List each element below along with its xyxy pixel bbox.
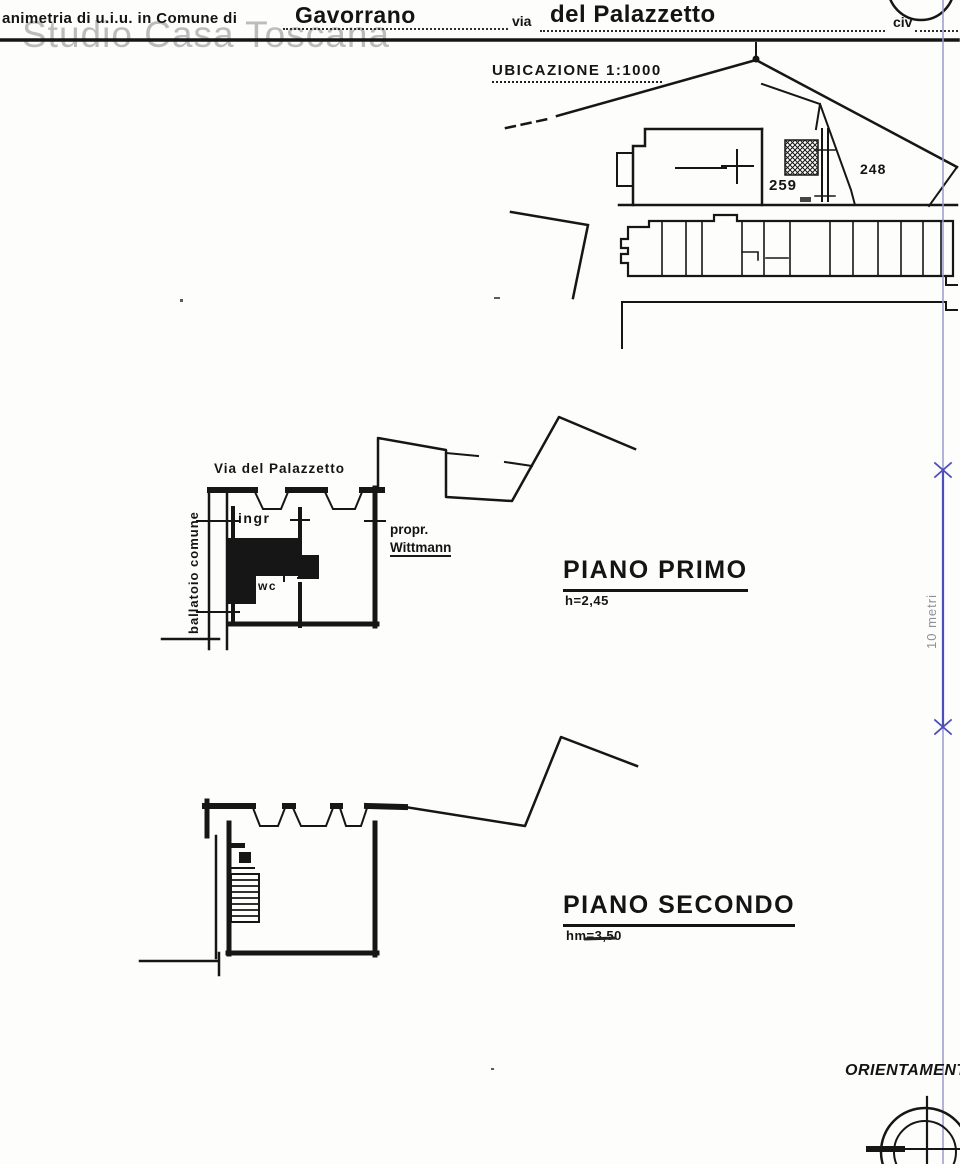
location-map-title: UBICAZIONE 1:1000	[492, 62, 662, 83]
owner-label-line1: propr.	[390, 522, 428, 537]
via-label: via	[512, 13, 531, 29]
form-dotted-line	[540, 30, 885, 32]
second-floor-plan-drawing	[140, 737, 637, 975]
form-dotted-line	[915, 30, 958, 32]
room-label-wc: wc	[258, 579, 277, 593]
parcel-number-259: 259	[769, 177, 797, 194]
room-label-ingresso: ingr	[238, 510, 270, 526]
owner-label-line2: Wittmann	[390, 540, 451, 557]
window-opening-icon	[253, 808, 285, 826]
window-opening-icon	[340, 808, 367, 826]
second-floor-title: PIANO SECONDO	[563, 891, 795, 927]
first-floor-boundary-line	[378, 417, 635, 501]
drawing-linework	[0, 0, 960, 1164]
scanned-floorplan-sheet: { "watermark": "Studio Casa Toscana", "h…	[0, 0, 960, 1164]
scale-bar-label: 10 metri	[924, 553, 939, 649]
survey-cross-icon	[722, 150, 753, 183]
first-floor-height-note: h=2,45	[565, 593, 609, 608]
street-value: del Palazzetto	[550, 1, 716, 29]
plan-street-label: Via del Palazzetto	[214, 461, 345, 476]
window-opening-icon	[293, 808, 333, 826]
first-floor-title: PIANO PRIMO	[563, 556, 748, 592]
balcony-label: ballatoio comune	[186, 488, 201, 634]
location-map-drawing	[506, 43, 957, 348]
window-opening-icon	[325, 492, 362, 509]
compass-icon	[869, 1097, 960, 1164]
second-floor-boundary-line	[405, 737, 637, 826]
subject-unit-hatch	[785, 140, 818, 175]
orientation-title: ORIENTAMENTO	[845, 1062, 960, 1080]
staircase-icon	[226, 538, 298, 576]
header-form-label: animetria di u.i.u. in Comune di	[2, 10, 237, 27]
civ-label: civ	[893, 14, 912, 30]
window-opening-icon	[255, 492, 288, 509]
parcel-number-248: 248	[860, 161, 886, 177]
comune-value: Gavorrano	[295, 2, 416, 29]
